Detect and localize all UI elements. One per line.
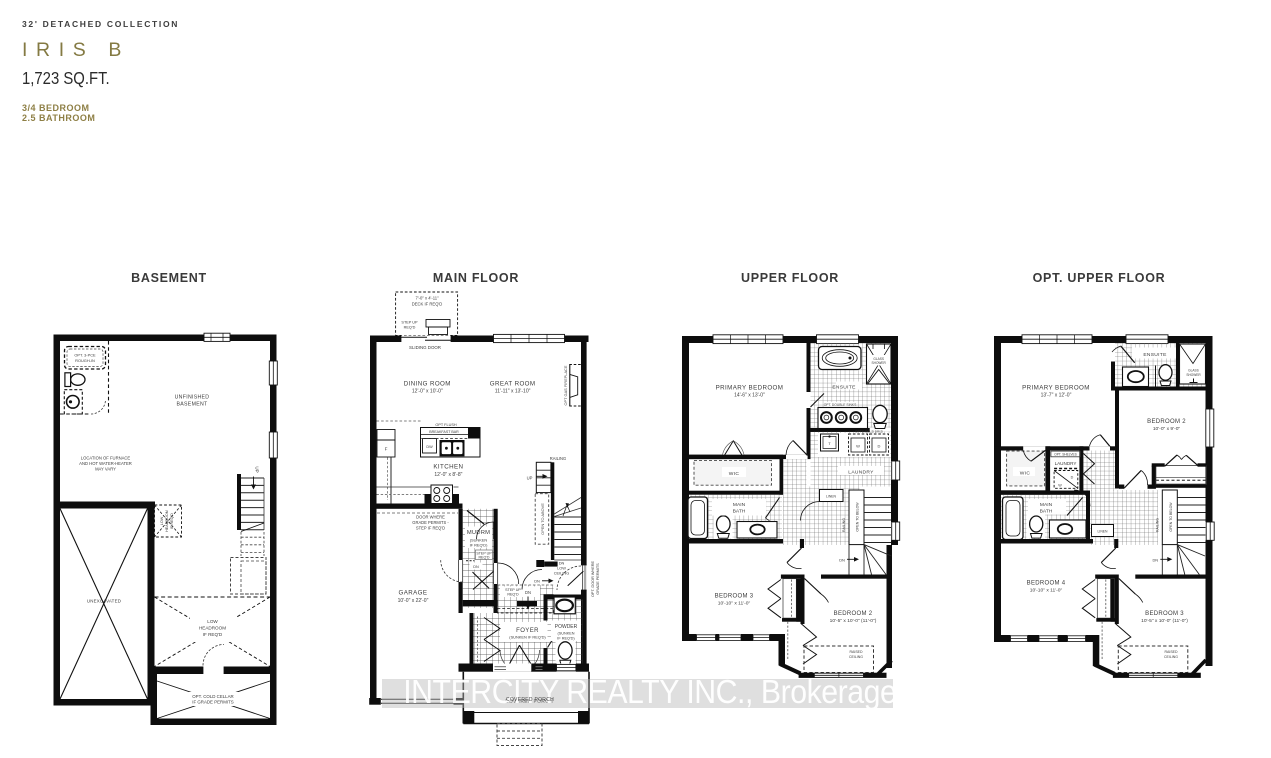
- svg-text:HEADROOM: HEADROOM: [165, 510, 169, 532]
- svg-text:BATH: BATH: [1040, 509, 1053, 515]
- svg-text:OPEN TO BELOW: OPEN TO BELOW: [1169, 502, 1173, 532]
- svg-text:ENSUITE: ENSUITE: [832, 385, 856, 391]
- svg-text:STEP IF REQ'D: STEP IF REQ'D: [416, 526, 445, 531]
- svg-text:BEDROOM 2: BEDROOM 2: [1147, 419, 1186, 425]
- svg-text:IF GRADE PERMITS: IF GRADE PERMITS: [192, 700, 234, 705]
- svg-text:IF REQ'D): IF REQ'D): [557, 637, 575, 641]
- svg-text:FOYER: FOYER: [516, 628, 539, 634]
- svg-text:AND HOT WATER-HEATER: AND HOT WATER-HEATER: [79, 461, 132, 466]
- svg-text:POWDER: POWDER: [555, 624, 578, 630]
- svg-text:12'-0" x 10'-0": 12'-0" x 10'-0": [412, 389, 443, 395]
- svg-text:GARAGE: GARAGE: [399, 590, 428, 597]
- svg-text:ROUGH-IN: ROUGH-IN: [75, 358, 95, 363]
- svg-text:OPT. DOUBLE SINKS: OPT. DOUBLE SINKS: [824, 403, 857, 407]
- svg-text:REQ'D: REQ'D: [478, 556, 489, 560]
- svg-text:DN: DN: [525, 590, 531, 595]
- svg-text:10'-10" x 11'-0": 10'-10" x 11'-0": [1030, 588, 1063, 594]
- svg-text:PRIMARY BEDROOM: PRIMARY BEDROOM: [716, 385, 784, 392]
- svg-text:WIC: WIC: [1020, 470, 1031, 476]
- svg-text:RAISED: RAISED: [849, 650, 863, 654]
- svg-text:DW: DW: [426, 445, 433, 449]
- svg-text:GREAT ROOM: GREAT ROOM: [490, 381, 536, 388]
- svg-text:SHOWER: SHOWER: [872, 361, 887, 365]
- svg-text:10'-0" x 9'-0": 10'-0" x 9'-0": [1153, 426, 1181, 432]
- svg-text:CEILING: CEILING: [849, 655, 863, 659]
- svg-text:BREAKFAST BAR: BREAKFAST BAR: [429, 430, 459, 434]
- svg-text:LOCATION OF FURNACE: LOCATION OF FURNACE: [81, 456, 131, 461]
- svg-text:STEP UP: STEP UP: [505, 588, 521, 592]
- svg-text:13'-7" x 12'-0": 13'-7" x 12'-0": [1041, 393, 1072, 399]
- svg-text:OPT GAS FIREPLACE: OPT GAS FIREPLACE: [563, 365, 568, 405]
- svg-text:(SUNKEN IF REQ'D): (SUNKEN IF REQ'D): [509, 635, 546, 640]
- svg-text:BEDROOM 4: BEDROOM 4: [1027, 581, 1066, 587]
- svg-text:UP: UP: [527, 476, 533, 481]
- svg-text:OPT. SHELVES: OPT. SHELVES: [1054, 453, 1076, 457]
- svg-text:DECK IF REQ'D: DECK IF REQ'D: [412, 302, 443, 307]
- svg-text:BEDROOM 3: BEDROOM 3: [715, 594, 754, 600]
- svg-text:MAY VARY: MAY VARY: [95, 467, 116, 472]
- svg-text:D: D: [1071, 476, 1074, 480]
- svg-text:CEILING: CEILING: [1164, 655, 1178, 659]
- svg-text:REQ'D: REQ'D: [404, 326, 416, 330]
- svg-text:IF REQ'D: IF REQ'D: [203, 632, 223, 637]
- svg-text:MAIN: MAIN: [1040, 502, 1053, 508]
- svg-text:RAISED: RAISED: [1164, 650, 1178, 654]
- svg-text:11'-11" x 13'-10": 11'-11" x 13'-10": [495, 389, 531, 395]
- svg-text:OPT. DOOR WHERE: OPT. DOOR WHERE: [591, 560, 595, 597]
- svg-text:LOW: LOW: [207, 619, 218, 624]
- svg-text:D: D: [878, 444, 881, 449]
- svg-text:STEP UP: STEP UP: [401, 321, 418, 325]
- svg-text:BEDROOM 2: BEDROOM 2: [834, 611, 873, 617]
- svg-text:10'-10" x 11'-0": 10'-10" x 11'-0": [718, 601, 751, 607]
- svg-text:OPT. 3-PCE: OPT. 3-PCE: [74, 353, 96, 358]
- svg-text:GRADE PERMITS -: GRADE PERMITS -: [412, 520, 449, 525]
- svg-text:14'-6" x 13'-0": 14'-6" x 13'-0": [734, 393, 765, 399]
- svg-text:W: W: [856, 444, 860, 449]
- svg-text:OPEN TO BELOW: OPEN TO BELOW: [856, 502, 860, 532]
- svg-text:KITCHEN: KITCHEN: [433, 464, 463, 471]
- svg-text:7'-0" x 4'-11": 7'-0" x 4'-11": [415, 296, 439, 301]
- svg-text:UP: UP: [255, 466, 260, 472]
- svg-text:10'-0" x 22'-0": 10'-0" x 22'-0": [398, 598, 429, 604]
- svg-text:DN: DN: [534, 579, 540, 584]
- svg-text:LAUNDRY: LAUNDRY: [1055, 461, 1077, 466]
- svg-text:ENSUITE: ENSUITE: [1143, 352, 1167, 358]
- svg-text:CEILING: CEILING: [554, 571, 570, 576]
- svg-text:RAILING: RAILING: [1155, 518, 1159, 532]
- svg-text:GLASS: GLASS: [1188, 369, 1199, 373]
- svg-text:DN: DN: [473, 565, 479, 569]
- svg-text:REQ'D: REQ'D: [507, 593, 519, 597]
- svg-text:UNFINISHED: UNFINISHED: [175, 395, 210, 401]
- svg-text:LAUNDRY: LAUNDRY: [848, 470, 874, 476]
- svg-text:PRIMARY BEDROOM: PRIMARY BEDROOM: [1022, 385, 1090, 392]
- svg-text:DN: DN: [1152, 558, 1158, 563]
- svg-text:F: F: [385, 447, 388, 452]
- svg-text:HEADROOM: HEADROOM: [199, 626, 226, 631]
- svg-text:DN: DN: [839, 558, 845, 563]
- svg-text:DOOR WHERE: DOOR WHERE: [416, 515, 445, 520]
- svg-text:RAILING: RAILING: [550, 456, 566, 461]
- svg-text:12'-0" x 8'-8": 12'-0" x 8'-8": [434, 472, 462, 478]
- svg-text:10'-5" x 10'-0" (11'-0"): 10'-5" x 10'-0" (11'-0"): [830, 618, 877, 624]
- svg-text:LINEN: LINEN: [826, 495, 837, 499]
- svg-text:LOW: LOW: [160, 516, 164, 525]
- svg-text:OPT. COLD CELLAR: OPT. COLD CELLAR: [192, 694, 233, 699]
- svg-text:W: W: [1058, 484, 1062, 488]
- svg-text:UNEXCAVATED: UNEXCAVATED: [87, 599, 121, 604]
- svg-text:RAILING: RAILING: [842, 518, 846, 532]
- svg-text:WIC: WIC: [729, 471, 740, 477]
- svg-text:IF REQ'D: IF REQ'D: [170, 513, 174, 529]
- svg-text:GRADE PERMITS: GRADE PERMITS: [596, 563, 600, 595]
- svg-text:BASEMENT: BASEMENT: [177, 402, 208, 408]
- svg-text:IF REQ'D): IF REQ'D): [470, 543, 489, 548]
- svg-text:SLIDING DOOR: SLIDING DOOR: [409, 345, 441, 350]
- svg-text:(SUNKEN: (SUNKEN: [557, 632, 574, 636]
- svg-text:10'-5" x 10'-0" (11'-0"): 10'-5" x 10'-0" (11'-0"): [1141, 618, 1188, 624]
- svg-text:OPT'D/DEL'D DRI'D: OPT'D/DEL'D DRI'D: [855, 430, 884, 434]
- svg-text:MAIN: MAIN: [733, 502, 746, 508]
- svg-text:OPT FLUSH: OPT FLUSH: [435, 423, 456, 427]
- svg-text:SHOWER: SHOWER: [1186, 373, 1201, 377]
- svg-text:DINING ROOM: DINING ROOM: [404, 381, 451, 388]
- svg-text:OPEN TO ABOVE: OPEN TO ABOVE: [540, 503, 545, 535]
- svg-text:BEDROOM 3: BEDROOM 3: [1145, 611, 1184, 617]
- svg-text:BATH: BATH: [733, 509, 746, 515]
- svg-text:LINEN: LINEN: [1098, 530, 1109, 534]
